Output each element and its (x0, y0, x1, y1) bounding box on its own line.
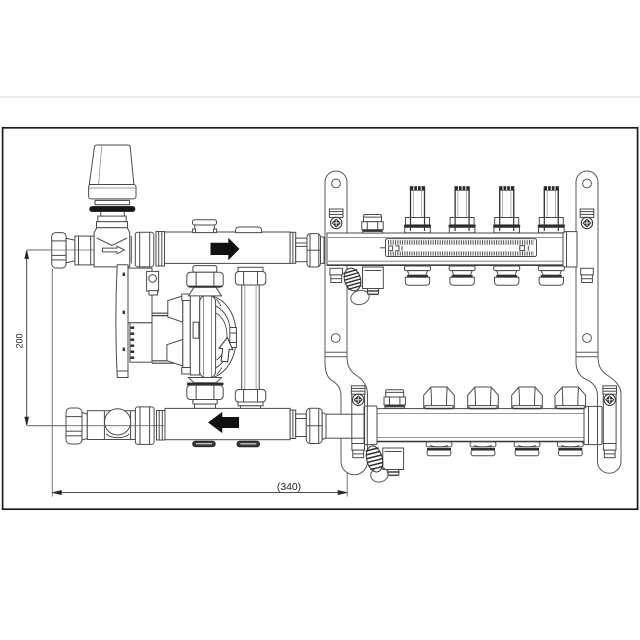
svg-text:200: 200 (15, 333, 25, 348)
svg-text:(340): (340) (277, 482, 301, 493)
